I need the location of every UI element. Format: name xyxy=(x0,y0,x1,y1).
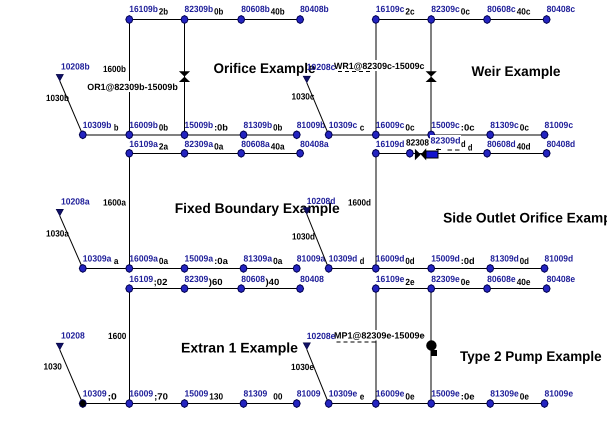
svg-text:81309: 81309 xyxy=(244,389,268,399)
svg-text:81309c: 81309c xyxy=(490,120,519,130)
svg-text:82309d: 82309d xyxy=(431,136,461,146)
svg-text::0c: :0c xyxy=(461,123,475,133)
svg-text:c: c xyxy=(360,123,365,133)
svg-text:40d: 40d xyxy=(517,142,531,152)
svg-text:80608c: 80608c xyxy=(487,4,516,14)
svg-text:2a: 2a xyxy=(159,142,169,152)
svg-text:1600d: 1600d xyxy=(348,198,371,208)
svg-text:82309b: 82309b xyxy=(185,4,214,14)
svg-text:16109b: 16109b xyxy=(129,4,158,14)
svg-text:d: d xyxy=(461,139,466,149)
svg-text:10208c: 10208c xyxy=(307,62,336,72)
svg-text:10208: 10208 xyxy=(61,331,85,341)
svg-text:81309a: 81309a xyxy=(244,254,274,264)
svg-text:130: 130 xyxy=(209,391,223,401)
svg-text:80408c: 80408c xyxy=(547,4,576,14)
svg-text:0b: 0b xyxy=(214,7,224,17)
svg-text:81009: 81009 xyxy=(297,389,321,399)
svg-text:0d: 0d xyxy=(520,256,529,266)
svg-text:16009b: 16009b xyxy=(129,120,158,130)
svg-text:15009b: 15009b xyxy=(185,120,214,130)
svg-text:82309: 82309 xyxy=(185,274,209,284)
svg-text:16109e: 16109e xyxy=(376,274,405,284)
svg-text:80408b: 80408b xyxy=(300,4,329,14)
svg-text:Weir Example: Weir Example xyxy=(472,63,561,79)
svg-text:80608b: 80608b xyxy=(241,4,270,14)
svg-text:15009a: 15009a xyxy=(185,254,215,264)
svg-text:0c: 0c xyxy=(461,7,470,17)
svg-text:2e: 2e xyxy=(405,277,414,287)
svg-text:0d: 0d xyxy=(405,256,414,266)
svg-text::0b: :0b xyxy=(214,123,228,133)
svg-text:10309c: 10309c xyxy=(329,120,358,130)
svg-text:0a: 0a xyxy=(273,256,283,266)
svg-text:10309: 10309 xyxy=(83,389,107,399)
svg-text:1600: 1600 xyxy=(108,331,126,341)
svg-text:0a: 0a xyxy=(159,256,169,266)
svg-text:15009e: 15009e xyxy=(431,389,460,399)
svg-text:16109: 16109 xyxy=(129,274,153,284)
svg-text:2b: 2b xyxy=(159,7,169,17)
svg-text:;02: ;02 xyxy=(154,277,168,287)
svg-text:81009b: 81009b xyxy=(297,120,326,130)
svg-text:b: b xyxy=(114,123,119,133)
svg-text:80608e: 80608e xyxy=(487,274,516,284)
svg-text:15009d: 15009d xyxy=(431,254,460,264)
svg-text:0c: 0c xyxy=(520,123,529,133)
svg-text:Extran 1 Example: Extran 1 Example xyxy=(181,339,298,355)
svg-text:1030c: 1030c xyxy=(292,92,315,102)
svg-text:0e: 0e xyxy=(520,391,529,401)
svg-text:15009c: 15009c xyxy=(431,120,460,130)
svg-text:0c: 0c xyxy=(405,123,414,133)
svg-text:1030: 1030 xyxy=(44,361,62,371)
svg-text:1030a: 1030a xyxy=(46,228,70,238)
svg-text:80408a: 80408a xyxy=(300,139,330,149)
svg-text:00: 00 xyxy=(273,391,282,401)
svg-text:82309e: 82309e xyxy=(431,274,460,284)
svg-text:10309b: 10309b xyxy=(83,120,112,130)
svg-text::0e: :0e xyxy=(461,391,475,401)
svg-text:80608: 80608 xyxy=(241,274,265,284)
svg-text:16009e: 16009e xyxy=(376,389,405,399)
svg-text:1030e: 1030e xyxy=(291,362,314,372)
svg-text:10309e: 10309e xyxy=(329,389,358,399)
svg-text:82308: 82308 xyxy=(406,138,429,148)
svg-text:81309b: 81309b xyxy=(244,120,273,130)
svg-text:1030d: 1030d xyxy=(292,232,315,242)
svg-text:40b: 40b xyxy=(271,7,285,17)
svg-text:16109d: 16109d xyxy=(376,139,405,149)
svg-text:Type 2 Pump Example: Type 2 Pump Example xyxy=(460,348,602,364)
svg-text:80408: 80408 xyxy=(300,274,324,284)
svg-text:10208a: 10208a xyxy=(61,196,91,206)
svg-text:0b: 0b xyxy=(273,123,283,133)
svg-text:16009c: 16009c xyxy=(376,120,405,130)
svg-text:10309d: 10309d xyxy=(329,254,358,264)
svg-text:80408d: 80408d xyxy=(547,139,576,149)
svg-text:0e: 0e xyxy=(405,391,414,401)
svg-text:16109c: 16109c xyxy=(376,4,405,14)
svg-text:82309a: 82309a xyxy=(185,139,215,149)
svg-text:2c: 2c xyxy=(405,7,414,17)
svg-text:OR1@82309b-15009b: OR1@82309b-15009b xyxy=(87,82,178,92)
svg-text:40e: 40e xyxy=(517,277,531,287)
svg-text:81009d: 81009d xyxy=(545,254,574,264)
svg-text:81009c: 81009c xyxy=(545,120,574,130)
svg-text:81009a: 81009a xyxy=(297,254,327,264)
svg-text:d: d xyxy=(468,143,473,153)
svg-text:40c: 40c xyxy=(517,7,531,17)
svg-text:16109a: 16109a xyxy=(129,139,159,149)
svg-text:)60: )60 xyxy=(209,277,223,287)
svg-text:WR1@82309c-15009c: WR1@82309c-15009c xyxy=(334,61,425,71)
svg-text:0b: 0b xyxy=(159,123,169,133)
svg-text:16009a: 16009a xyxy=(129,254,159,264)
svg-text:;0: ;0 xyxy=(108,391,117,401)
svg-text:81009e: 81009e xyxy=(545,389,574,399)
svg-text:0e: 0e xyxy=(461,277,470,287)
svg-text:10208e: 10208e xyxy=(307,331,336,341)
svg-text:10309a: 10309a xyxy=(83,254,113,264)
svg-text:1030b: 1030b xyxy=(46,93,69,103)
svg-text:80408e: 80408e xyxy=(547,274,576,284)
svg-text:81309d: 81309d xyxy=(490,254,519,264)
svg-text::0d: :0d xyxy=(461,256,475,266)
svg-text:;70: ;70 xyxy=(154,391,168,401)
svg-text:40a: 40a xyxy=(271,142,286,152)
svg-text:80608d: 80608d xyxy=(487,139,516,149)
svg-text:10208d: 10208d xyxy=(307,196,336,206)
svg-text:10208b: 10208b xyxy=(61,61,90,71)
svg-text:Orifice Example: Orifice Example xyxy=(214,60,316,76)
svg-text:1600a: 1600a xyxy=(103,198,127,208)
svg-text:MP1@82309e-15009e: MP1@82309e-15009e xyxy=(334,330,425,340)
svg-text:1600b: 1600b xyxy=(103,64,126,74)
svg-text:81309e: 81309e xyxy=(490,389,519,399)
svg-text:82309c: 82309c xyxy=(431,4,460,14)
svg-text:d: d xyxy=(360,256,365,266)
svg-text:16009: 16009 xyxy=(129,389,153,399)
svg-text:15009: 15009 xyxy=(185,389,209,399)
svg-text:80608a: 80608a xyxy=(241,139,271,149)
svg-text:0a: 0a xyxy=(214,142,224,152)
svg-text:Side Outlet Orifice Example: Side Outlet Orifice Example xyxy=(443,209,607,225)
svg-text:)40: )40 xyxy=(266,277,280,287)
svg-text:e: e xyxy=(360,391,365,401)
svg-text:16009d: 16009d xyxy=(376,254,405,264)
svg-text::0a: :0a xyxy=(214,256,229,266)
